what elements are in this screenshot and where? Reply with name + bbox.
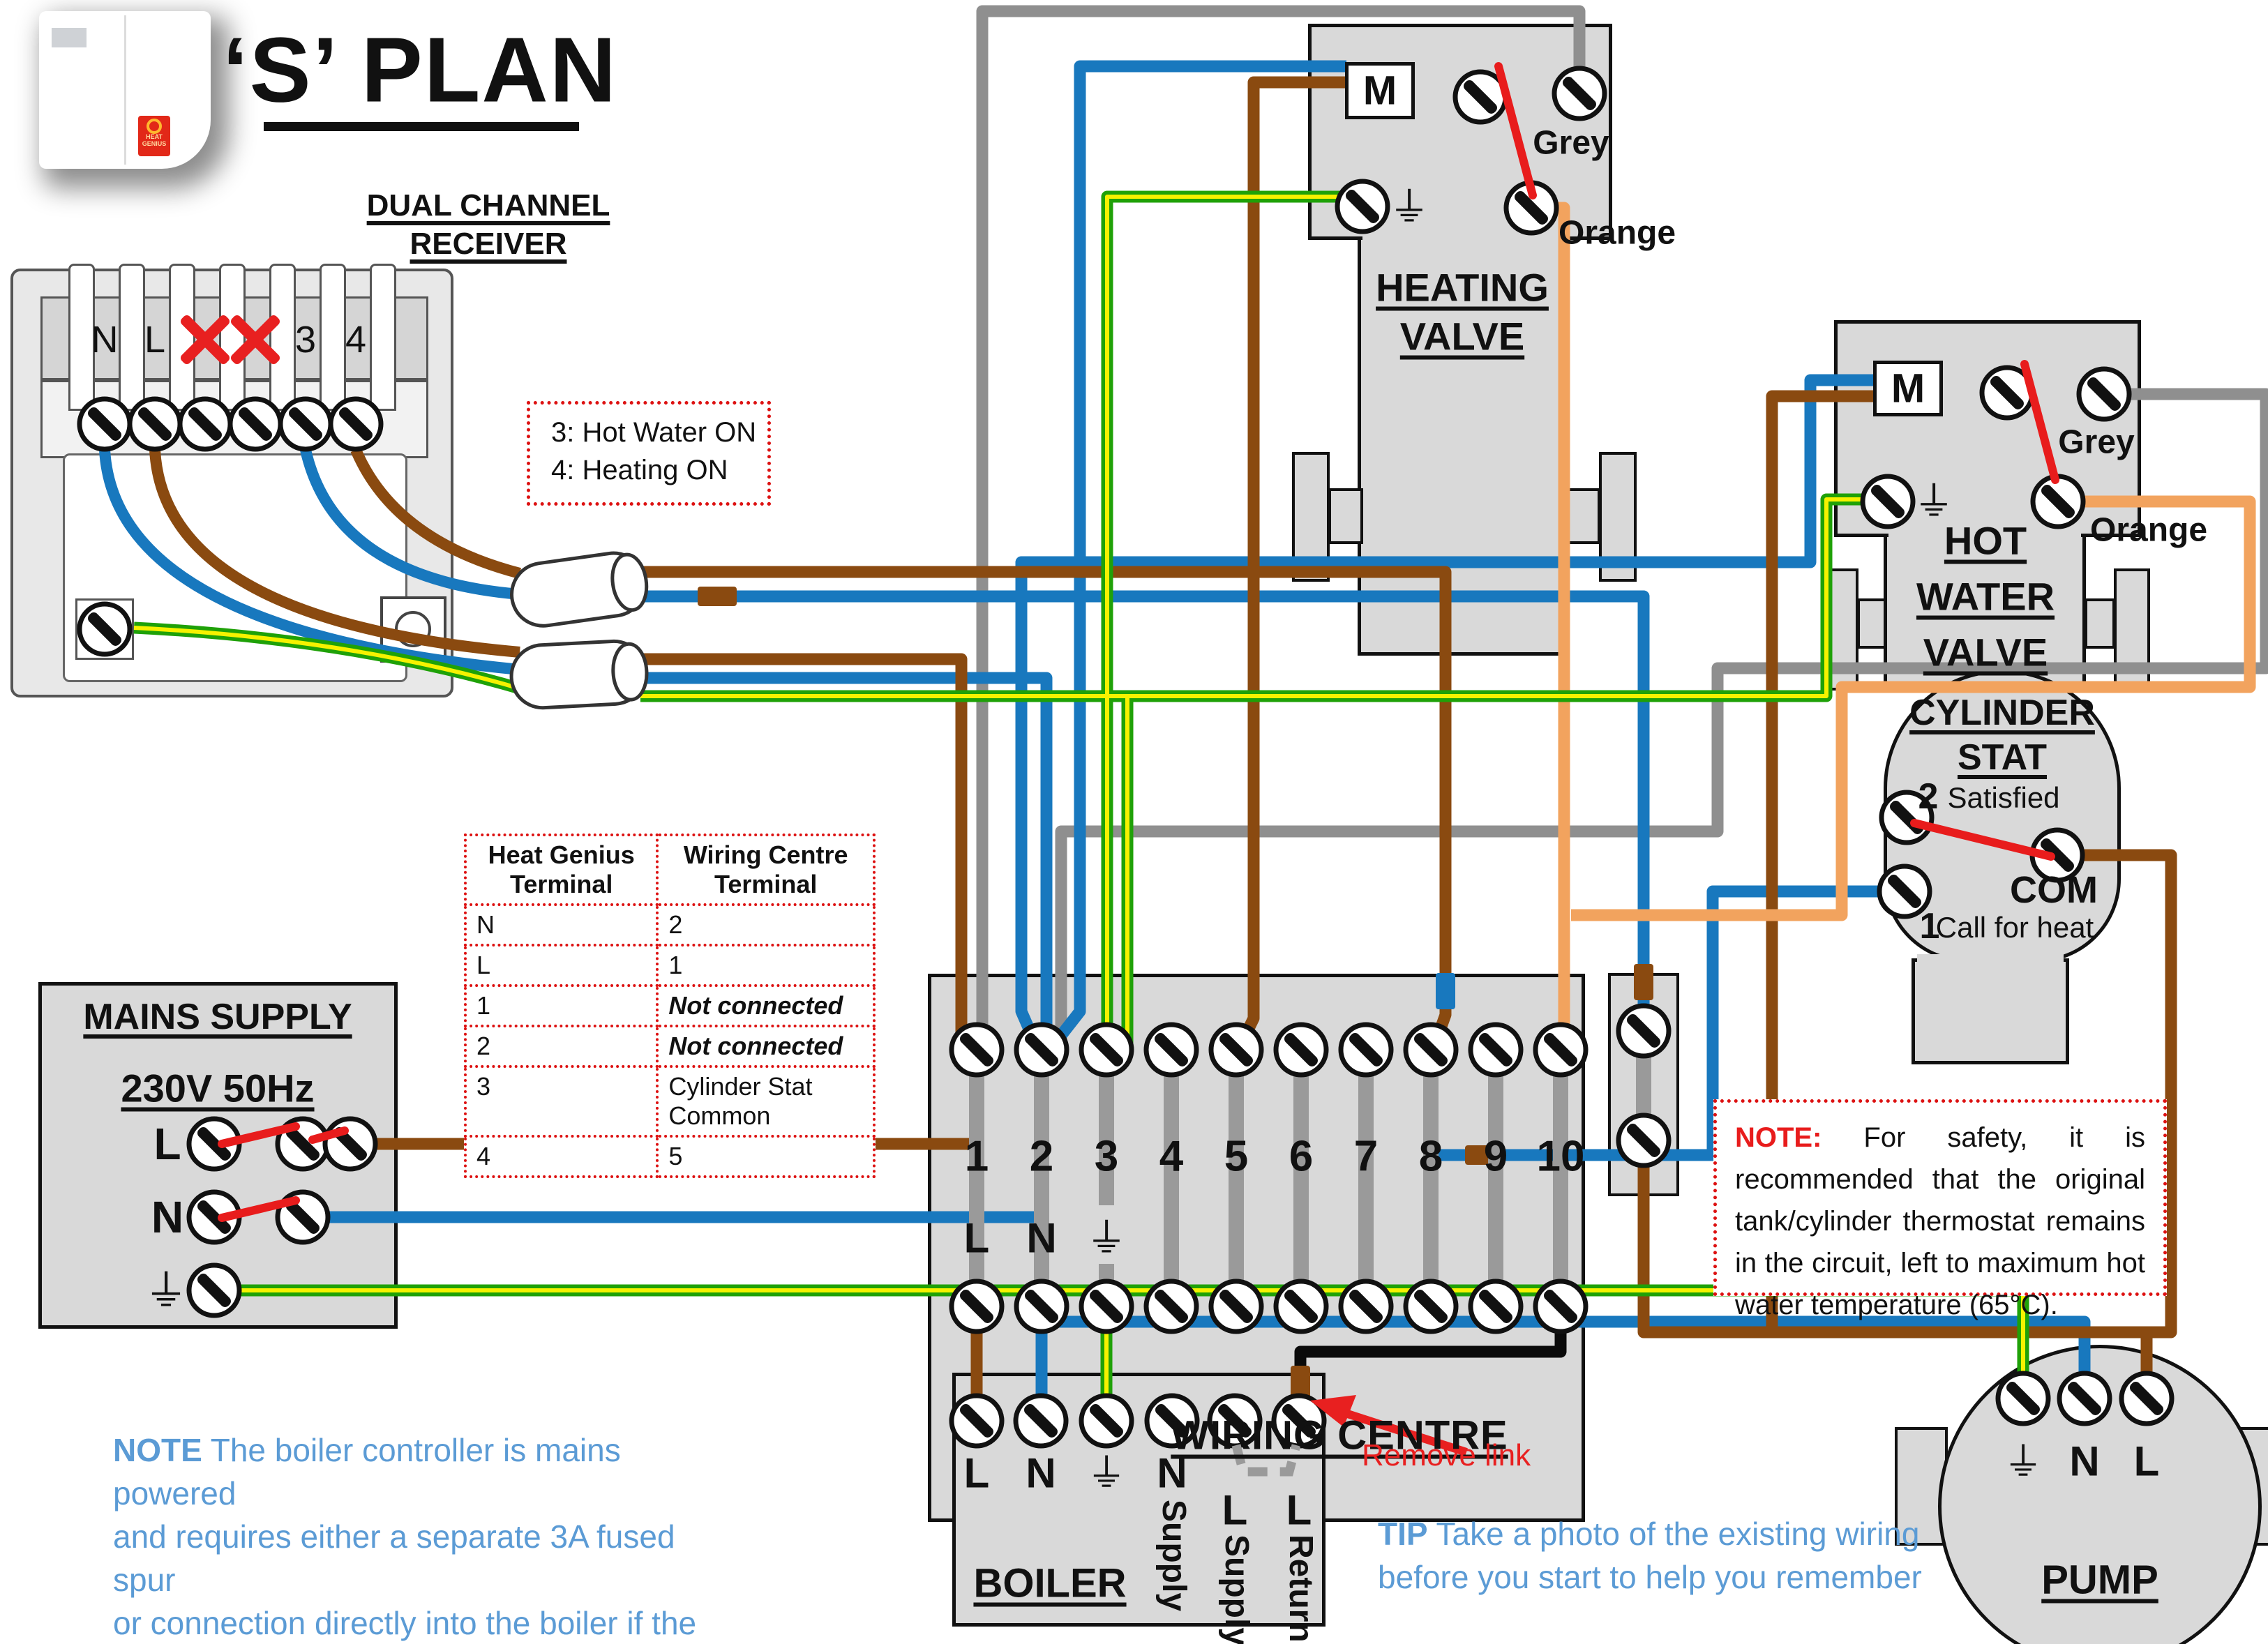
table-cell: 2 xyxy=(657,905,874,945)
channel-note-line1: 3: Hot Water ON xyxy=(551,417,756,448)
cyl-stat-call-label: Call for heat xyxy=(1936,911,2094,944)
cyl-stat-title2: STAT xyxy=(1958,737,2047,778)
hot-water-valve-name1: HOT xyxy=(1944,518,2027,564)
boiler-l-return-letter: L xyxy=(1286,1486,1312,1534)
boiler-note-line2: and requires either a separate 3A fused … xyxy=(113,1518,675,1598)
heating-valve-orange-label: Orange xyxy=(1559,214,1676,252)
receiver-internal-wires xyxy=(105,450,522,689)
boiler-note-line3: or connection directly into the boiler i… xyxy=(113,1605,696,1641)
pump-earth-icon: ⏚ xyxy=(2004,1431,2043,1488)
heating-valve-earth-icon: ⏚ xyxy=(1389,174,1429,233)
hot-water-valve-orange-label: Orange xyxy=(2090,511,2207,550)
hot-water-valve-name2: WATER xyxy=(1916,574,2055,619)
mains-l-label: L xyxy=(153,1118,181,1170)
mains-title: MAINS SUPPLY xyxy=(83,996,352,1038)
wc-earth-icon: ⏚ xyxy=(1086,1205,1127,1264)
page-title: ‘S’ PLAN xyxy=(223,17,617,123)
table-cell: L xyxy=(465,945,657,986)
s-plan-wiring-diagram: ‘S’ PLAN DUAL CHANNEL RECEIVER N L 3 4 3… xyxy=(0,0,2268,1644)
receiver-terminal-3: 3 xyxy=(295,318,316,361)
boiler-note: NOTE The boiler controller is mains powe… xyxy=(113,1428,741,1644)
table-cell: Not connected xyxy=(657,1026,874,1066)
safety-note-box: NOTE: For safety, it is recommended that… xyxy=(1713,1099,2167,1296)
wire-brown-mains-l xyxy=(357,1144,977,1421)
receiver-terminal-n: N xyxy=(91,318,119,361)
wc-number-1: 1 xyxy=(965,1132,989,1182)
wc-number-10: 10 xyxy=(1537,1132,1585,1182)
page-title-underline xyxy=(264,122,579,131)
receiver-terminal-4: 4 xyxy=(345,318,366,361)
remove-link-label: Remove link xyxy=(1362,1438,1531,1473)
table-cell: Not connected xyxy=(657,986,874,1026)
receiver-heading-line2: RECEIVER xyxy=(410,227,567,262)
logo-brand2: GENIUS xyxy=(138,141,170,148)
wire-grey-heating-valve xyxy=(982,11,1579,1050)
table-col2-header: Wiring Centre Terminal xyxy=(657,835,874,905)
table-cell: 3 xyxy=(465,1066,657,1136)
wc-number-6: 6 xyxy=(1289,1132,1313,1182)
cyl-stat-com-label: COM xyxy=(2010,868,2098,912)
pump-n-label: N xyxy=(2069,1438,2099,1486)
cyl-stat-title1: CYLINDER xyxy=(1909,692,2095,734)
cyl-stat-switch xyxy=(1914,823,2051,857)
safety-note-prefix: NOTE: xyxy=(1735,1122,1822,1153)
heating-valve-name2: VALVE xyxy=(1400,314,1524,359)
wc-number-3: 3 xyxy=(1095,1132,1118,1182)
mains-voltage: 230V 50Hz xyxy=(121,1066,314,1111)
wire-blue-mains-n xyxy=(308,1217,1042,1421)
table-cell: Cylinder Stat Common xyxy=(657,1066,874,1136)
boiler-title: BOILER xyxy=(973,1560,1126,1607)
boiler-note-prefix: NOTE xyxy=(113,1432,202,1468)
channel-note-box: 3: Hot Water ON 4: Heating ON xyxy=(527,401,771,506)
table-col1-header: Heat Genius Terminal xyxy=(465,835,657,905)
receiver-heading-line1: DUAL CHANNEL xyxy=(367,188,610,223)
hot-water-valve-name3: VALVE xyxy=(1923,630,2048,675)
cyl-stat-satisfied-num: 2 xyxy=(1918,776,1939,817)
boiler-n-supply-letter: N xyxy=(1157,1449,1187,1498)
boiler-l-return-word: Return xyxy=(1282,1534,1320,1643)
hot-water-valve-switch xyxy=(2025,364,2055,480)
tip-prefix: TIP xyxy=(1378,1516,1428,1552)
wc-l-label: L xyxy=(964,1214,990,1262)
receiver-cable-sheaths xyxy=(508,549,651,709)
boiler-l-supply-letter: L xyxy=(1222,1486,1248,1534)
heating-valve-name1: HEATING xyxy=(1376,265,1549,310)
tip-line2: before you start to help you remember xyxy=(1378,1559,1922,1595)
hot-water-valve-grey-label: Grey xyxy=(2058,423,2134,462)
mains-n-label: N xyxy=(151,1191,183,1243)
table-cell: 1 xyxy=(657,945,874,986)
wc-number-7: 7 xyxy=(1354,1132,1378,1182)
heating-valve-grey-label: Grey xyxy=(1533,124,1609,163)
wire-orange-heating-valve xyxy=(1543,208,1564,1050)
table-cell: 5 xyxy=(657,1136,874,1177)
hot-water-valve-m-label: M xyxy=(1891,365,1925,412)
crossed-out-terminal-icon xyxy=(179,314,282,366)
wc-number-9: 9 xyxy=(1484,1132,1508,1182)
brown-sleeve xyxy=(698,587,737,606)
boiler-n-supply-word: Supply xyxy=(1155,1500,1193,1611)
brown-sleeve xyxy=(1634,964,1653,1000)
tip-line1: Take a photo of the existing wiring xyxy=(1428,1516,1920,1552)
channel-note-line2: 4: Heating ON xyxy=(551,455,728,486)
wire-earth-heating-valve xyxy=(1107,197,1348,1050)
wc-number-4: 4 xyxy=(1159,1132,1183,1182)
boiler-l-label: L xyxy=(964,1449,990,1498)
wiring-layer xyxy=(0,0,2268,1644)
blue-sleeve xyxy=(1436,973,1455,1009)
heating-valve-switch xyxy=(1499,66,1533,195)
pump-title: PUMP xyxy=(2041,1557,2158,1604)
logo-ring-icon xyxy=(147,119,162,134)
boiler-l-supply-word: Supply xyxy=(1217,1534,1256,1644)
wc-number-2: 2 xyxy=(1030,1132,1053,1182)
terminal-mapping-table: Heat Genius Terminal Wiring Centre Termi… xyxy=(464,834,876,1178)
wc-number-5: 5 xyxy=(1224,1132,1248,1182)
tip-note: TIP Take a photo of the existing wiring … xyxy=(1378,1512,1936,1599)
table-cell: 4 xyxy=(465,1136,657,1177)
wc-n-label: N xyxy=(1026,1214,1056,1262)
table-cell: 2 xyxy=(465,1026,657,1066)
receiver-terminal-l: L xyxy=(144,318,165,361)
cyl-stat-satisfied-label: Satisfied xyxy=(1947,781,2059,815)
heating-valve-m-label: M xyxy=(1363,68,1397,114)
table-cell: N xyxy=(465,905,657,945)
heat-genius-logo: HEAT GENIUS xyxy=(138,116,170,156)
mains-earth-icon: ⏚ xyxy=(144,1255,188,1318)
boiler-n-label: N xyxy=(1026,1449,1056,1498)
pump-l-label: L xyxy=(2134,1438,2160,1486)
table-cell: 1 xyxy=(465,986,657,1026)
wc-number-8: 8 xyxy=(1419,1132,1443,1182)
boiler-earth-icon: ⏚ xyxy=(1087,1442,1126,1499)
